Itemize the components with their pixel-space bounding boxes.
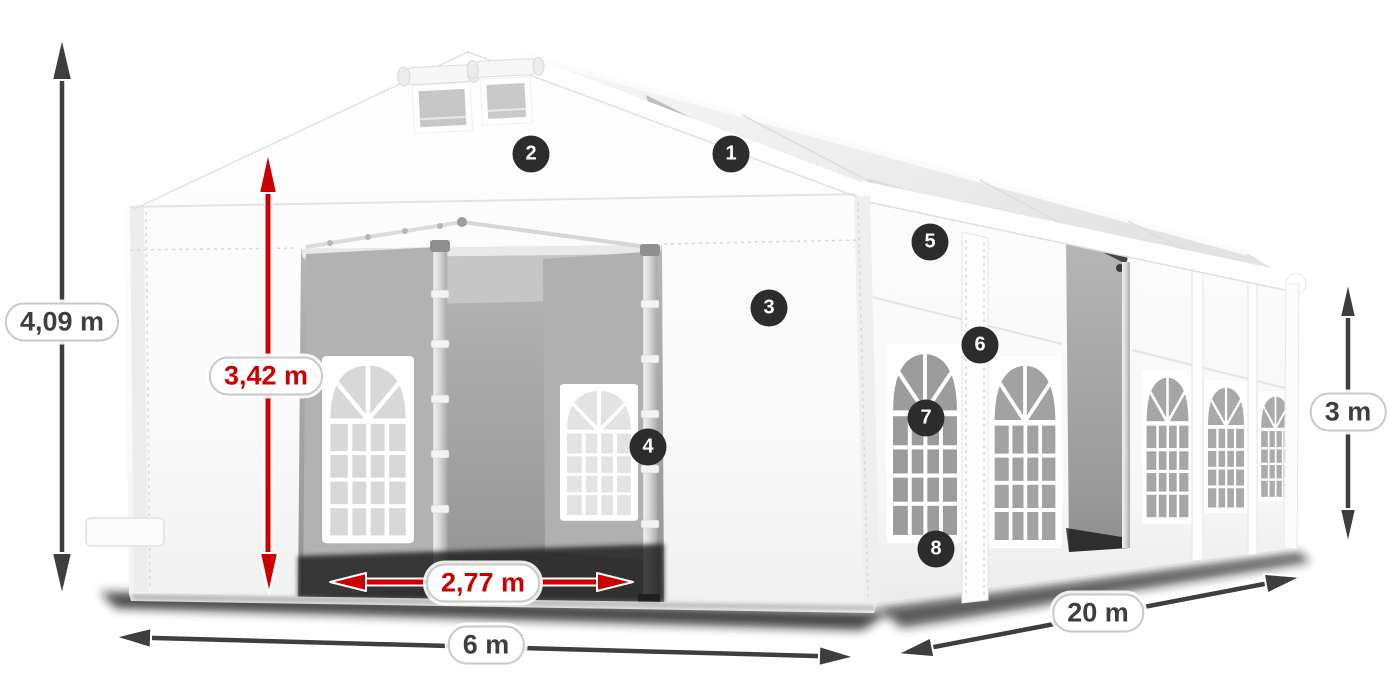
tent-dimension-diagram: 1 2 3 4 5 6 7 8 4,09 m 3,42 m 2,77 m 6 m… [0, 0, 1400, 700]
marker-7-badge[interactable]: 7 [908, 400, 945, 437]
marker-1-badge[interactable]: 1 [713, 136, 750, 173]
side-window-4 [1204, 381, 1248, 513]
side-entrance-pole [1122, 262, 1130, 548]
entrance-width-label: 2,77 m [426, 564, 540, 603]
wall-height-label: 3 m [1310, 393, 1387, 432]
marker-4-badge[interactable]: 4 [630, 429, 667, 466]
front-width-label: 6 m [448, 626, 525, 665]
tent-diagram-svg [0, 0, 1400, 700]
inner-door-right-window [560, 384, 638, 521]
entrance-height-label: 3,42 m [209, 357, 323, 396]
marker-8-badge[interactable]: 8 [918, 531, 955, 568]
side-window-2 [988, 356, 1062, 548]
wall-strap-buckle [86, 518, 164, 546]
marker-5-badge[interactable]: 5 [912, 224, 949, 261]
side-entrance-opening [1066, 233, 1130, 552]
side-length-label: 20 m [1052, 594, 1144, 633]
marker-3-badge[interactable]: 3 [751, 290, 788, 327]
entrance-pole-left [430, 240, 450, 590]
side-window-1 [886, 344, 964, 543]
marker-2-badge[interactable]: 2 [513, 136, 550, 173]
total-height-label: 4,09 m [5, 303, 119, 342]
side-window-3 [1142, 370, 1193, 524]
inner-door-left [303, 247, 436, 596]
inner-door-right [543, 252, 647, 560]
front-entrance-opening [298, 217, 664, 604]
inner-door-left-window [322, 356, 414, 543]
marker-6-badge[interactable]: 6 [962, 327, 999, 364]
